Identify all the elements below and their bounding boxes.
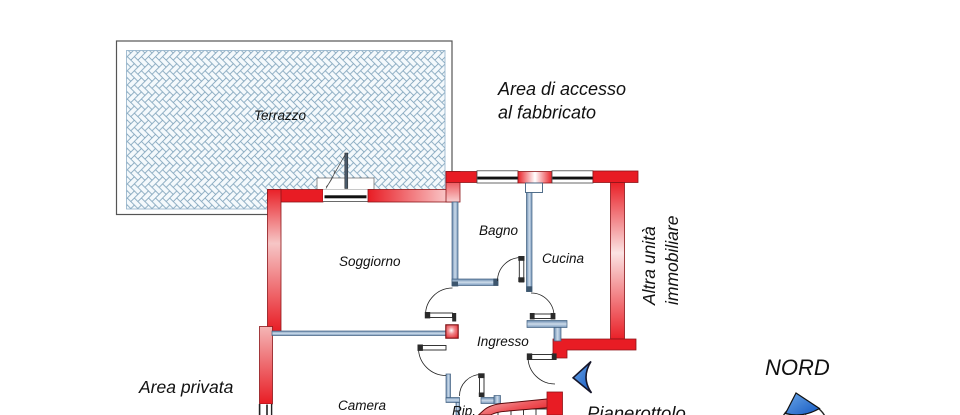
svg-text:Bagno: Bagno xyxy=(479,223,519,238)
svg-text:immobiliare: immobiliare xyxy=(662,215,682,305)
svg-text:Pianerottolo: Pianerottolo xyxy=(587,403,686,415)
svg-text:Area privata: Area privata xyxy=(138,377,234,397)
svg-text:al fabbricato: al fabbricato xyxy=(498,103,596,123)
svg-text:Cucina: Cucina xyxy=(542,251,585,266)
svg-text:Soggiorno: Soggiorno xyxy=(339,254,401,269)
svg-text:NORD: NORD xyxy=(765,355,830,380)
svg-text:Ingresso: Ingresso xyxy=(477,334,529,349)
svg-text:Altra unità: Altra unità xyxy=(639,226,659,306)
svg-text:Rip.: Rip. xyxy=(452,404,476,415)
svg-text:Terrazzo: Terrazzo xyxy=(254,108,307,123)
svg-text:Area di accesso: Area di accesso xyxy=(497,79,626,99)
svg-text:Camera: Camera xyxy=(338,398,387,413)
